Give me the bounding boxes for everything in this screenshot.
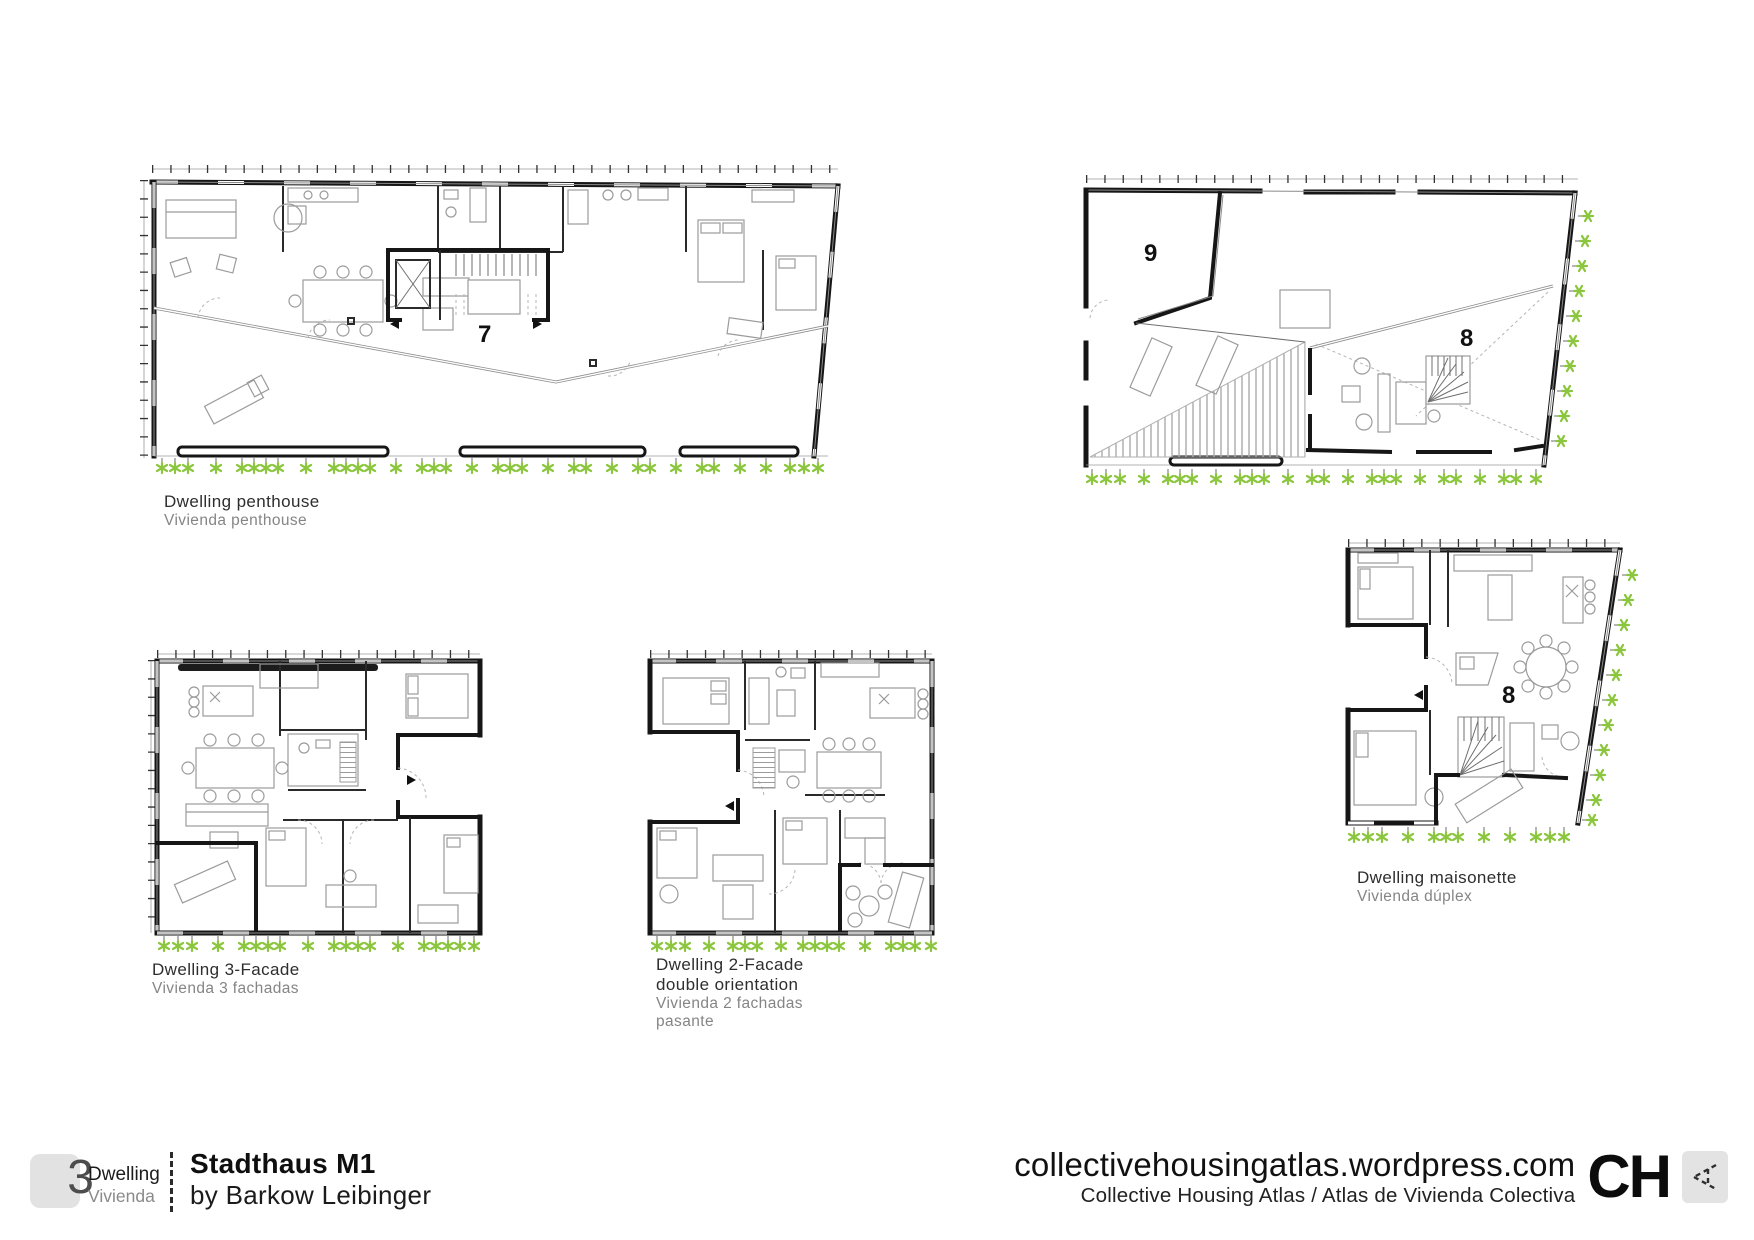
footer-divider bbox=[170, 1152, 173, 1212]
two-facade-caption: Dwelling 2-Facade double orientation Viv… bbox=[656, 955, 804, 1032]
caption-title: Dwelling maisonette bbox=[1357, 868, 1517, 888]
caption-title-line2: double orientation bbox=[656, 975, 804, 995]
penthouse-floor-plan: 7 bbox=[138, 160, 850, 500]
unit-number-maisonette: 8 bbox=[1502, 682, 1515, 709]
caption-title: Dwelling penthouse bbox=[164, 492, 320, 512]
atlas-triangle-icon bbox=[1682, 1151, 1728, 1203]
three-facade-caption: Dwelling 3-Facade Vivienda 3 fachadas bbox=[152, 960, 300, 998]
caption-subtitle: Vivienda penthouse bbox=[164, 512, 320, 530]
unit-label-en: Dwelling bbox=[88, 1164, 160, 1186]
project-titleblock: Stadthaus M1 by Barkow Leibinger bbox=[190, 1148, 431, 1211]
project-architect: by Barkow Leibinger bbox=[190, 1180, 431, 1211]
site-url: collectivehousingatlas.wordpress.com bbox=[1014, 1146, 1575, 1184]
footer-right: collectivehousingatlas.wordpress.com Col… bbox=[1014, 1146, 1728, 1208]
unit-number-penthouse: 7 bbox=[478, 321, 491, 348]
site-block: collectivehousingatlas.wordpress.com Col… bbox=[1014, 1146, 1575, 1208]
maisonette-floor-plan: 8 bbox=[1338, 535, 1656, 870]
ch-logo: CH bbox=[1587, 1147, 1670, 1207]
planting-row bbox=[1087, 469, 1541, 484]
planting-row bbox=[159, 936, 479, 951]
caption-subtitle-line2: pasante bbox=[656, 1013, 804, 1031]
unit-number-room9: 9 bbox=[1144, 240, 1157, 267]
caption-subtitle-line1: Vivienda 2 fachadas bbox=[656, 995, 804, 1013]
three-facade-floor-plan bbox=[148, 650, 496, 963]
footer: 3 Dwelling Vivienda Stadthaus M1 by Bark… bbox=[0, 1142, 1754, 1240]
planting-row bbox=[157, 458, 823, 473]
penthouse-caption: Dwelling penthouse Vivienda penthouse bbox=[164, 492, 320, 530]
planting-row bbox=[1349, 827, 1569, 842]
drawing-sheet: 7 Dwelling penthouse Vivienda penthouse bbox=[0, 0, 1754, 1240]
unit-number-roof8: 8 bbox=[1460, 325, 1473, 352]
caption-subtitle: Vivienda dúplex bbox=[1357, 888, 1517, 906]
caption-title: Dwelling 3-Facade bbox=[152, 960, 300, 980]
planting-row bbox=[652, 936, 936, 951]
site-name: Collective Housing Atlas / Atlas de Vivi… bbox=[1014, 1184, 1575, 1208]
roof-terrace-floor-plan: 9 bbox=[1078, 168, 1673, 508]
project-title: Stadthaus M1 bbox=[190, 1148, 431, 1180]
unit-count-badge: 3 bbox=[30, 1154, 80, 1208]
caption-title-line1: Dwelling 2-Facade bbox=[656, 955, 804, 975]
two-facade-floor-plan bbox=[645, 650, 950, 963]
caption-subtitle: Vivienda 3 fachadas bbox=[152, 980, 300, 998]
unit-label-es: Vivienda bbox=[88, 1186, 160, 1207]
maisonette-caption: Dwelling maisonette Vivienda dúplex bbox=[1357, 868, 1517, 906]
unit-labels: Dwelling Vivienda bbox=[88, 1164, 160, 1207]
